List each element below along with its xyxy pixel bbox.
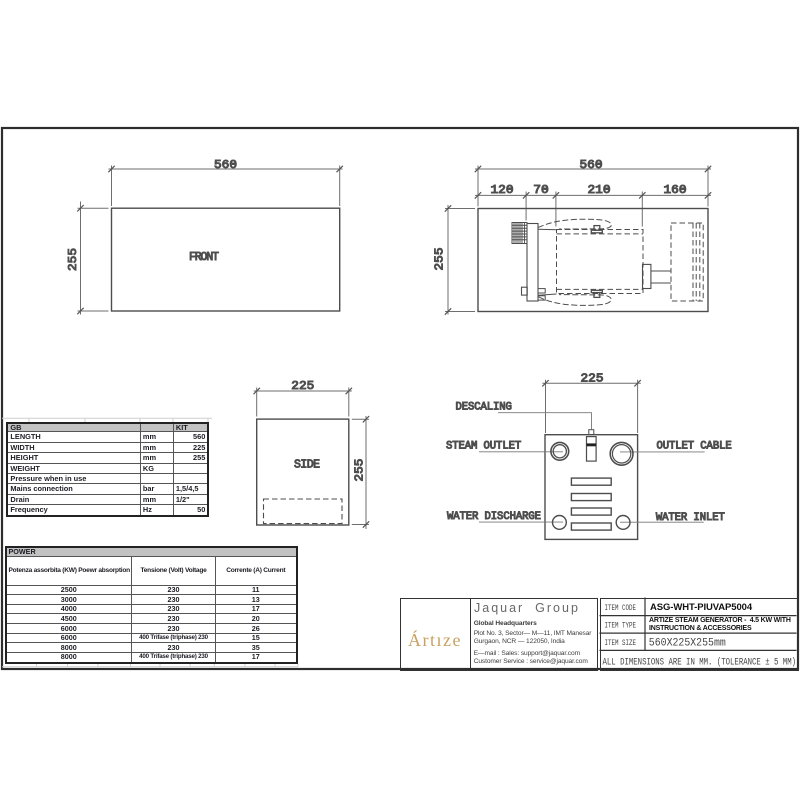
svg-text:ITEM TYPE: ITEM TYPE (605, 621, 637, 631)
svg-text:ALL DIMENSIONS ARE IN MM. (TOL: ALL DIMENSIONS ARE IN MM. (TOLERANCE ± 5… (603, 657, 797, 669)
svg-text:ITEM SIZE: ITEM SIZE (605, 638, 637, 648)
svg-text:ITEM CODE: ITEM CODE (605, 603, 637, 613)
svg-text:560X225X255mm: 560X225X255mm (649, 637, 726, 649)
